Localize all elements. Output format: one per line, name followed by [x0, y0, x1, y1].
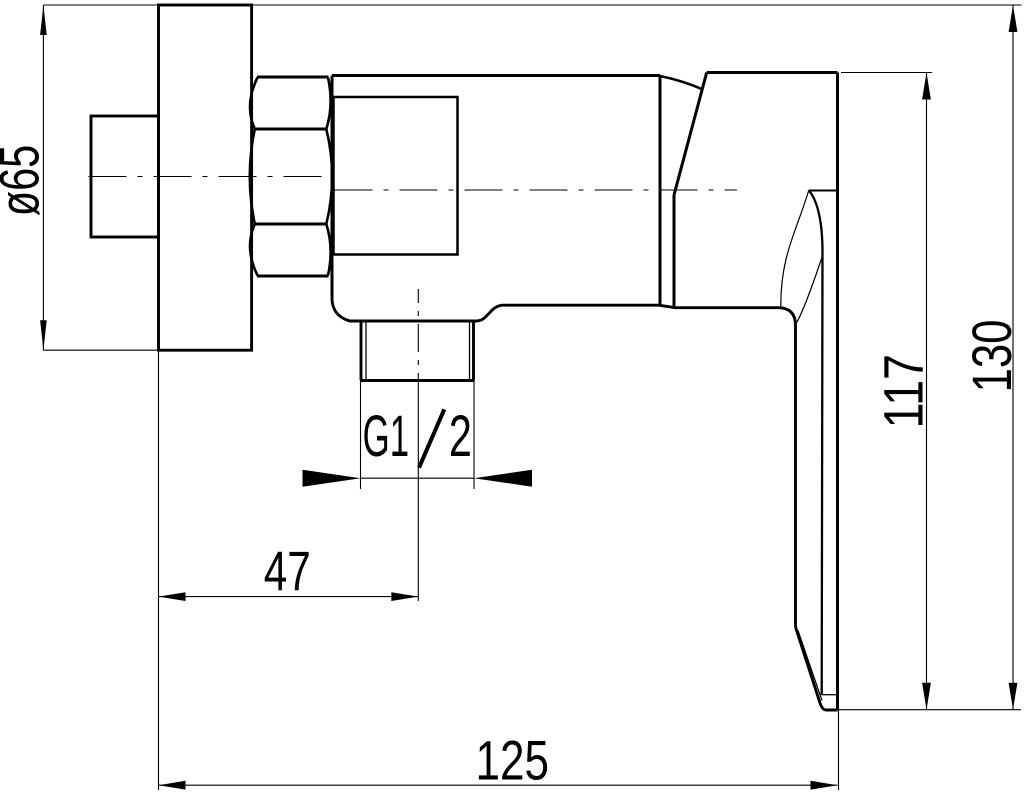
- svg-text:2: 2: [449, 404, 472, 469]
- svg-text:ø65: ø65: [0, 145, 50, 217]
- svg-text:117: 117: [871, 354, 934, 429]
- svg-text:G1: G1: [363, 404, 410, 469]
- svg-text:125: 125: [475, 729, 549, 792]
- svg-text:47: 47: [264, 539, 311, 602]
- svg-text:130: 130: [960, 320, 1023, 393]
